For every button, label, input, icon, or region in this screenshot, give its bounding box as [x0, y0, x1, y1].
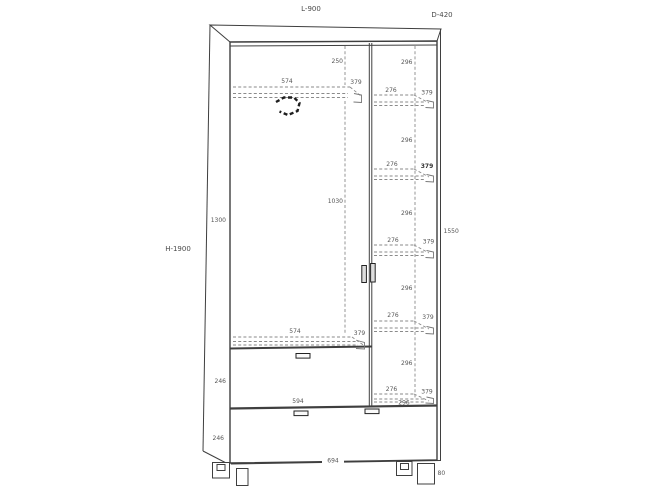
- drawer2-handle-right: [365, 409, 379, 414]
- wardrobe-technical-drawing: L-900 D-420 H-1900 250 296 574 379 276 3…: [0, 0, 648, 486]
- dim-label: 296: [401, 210, 413, 217]
- dim-label: 379: [421, 90, 433, 97]
- drawing-canvas: L-900 D-420 H-1900 250 296 574 379 276 3…: [0, 0, 648, 486]
- overall-depth-label: D-420: [431, 11, 452, 19]
- shelf2-bracket: [426, 175, 434, 183]
- front-right-leg-notch: [401, 464, 409, 470]
- dim-label: 246: [215, 378, 227, 385]
- depth-brackets: [354, 94, 434, 404]
- left-door-handle: [362, 266, 367, 283]
- dim-label: 296: [401, 285, 413, 292]
- dim-label: 1030: [328, 198, 343, 205]
- dim-label: 594: [292, 398, 304, 405]
- top-panel: [210, 25, 441, 42]
- shelf1-bracket: [426, 101, 434, 109]
- dimension-labels: 250 296 574 379 276 379 296 276 379 1030…: [211, 58, 459, 477]
- dim-label: 379: [423, 239, 435, 246]
- overall-width-label: L-900: [301, 5, 321, 13]
- dim-label: 379: [421, 389, 433, 396]
- dim-label: 296: [401, 360, 413, 367]
- dim-label: 296: [401, 137, 413, 144]
- drawer1-handle: [296, 354, 310, 359]
- right-door-handle: [371, 264, 376, 283]
- clothes-hanger-icon: [276, 98, 300, 116]
- front-left-leg-notch: [217, 465, 225, 471]
- back-right-leg: [418, 464, 435, 485]
- dim-label: 296: [398, 400, 410, 407]
- handles: [294, 264, 379, 416]
- dim-label: 246: [213, 435, 225, 442]
- dim-label: 379: [354, 330, 366, 337]
- back-left-leg: [237, 469, 249, 486]
- dim-label: 276: [386, 161, 398, 168]
- left-bottom-bracket: [356, 341, 365, 350]
- dim-label: 574: [289, 328, 301, 335]
- left-side-edge: [203, 25, 210, 451]
- dim-label: 276: [385, 87, 397, 94]
- dim-label: 276: [387, 312, 399, 319]
- dim-label: 1550: [444, 228, 459, 235]
- dim-label: 1300: [211, 217, 226, 224]
- rod-bracket: [354, 94, 362, 103]
- shelf4-bracket: [426, 327, 434, 335]
- dim-label: 276: [386, 386, 398, 393]
- dim-label: 276: [387, 237, 399, 244]
- shelf3-bracket: [426, 251, 434, 259]
- dim-label: 379: [422, 314, 434, 321]
- dim-label: 694: [327, 458, 339, 465]
- dim-label: 296: [401, 59, 413, 66]
- dim-label: 379: [350, 79, 362, 86]
- top-panel-thickness-line: [230, 45, 437, 46]
- dim-label: 379: [421, 163, 434, 170]
- legs: [213, 462, 435, 486]
- overall-height-label: H-1900: [165, 245, 191, 253]
- dim-label: 574: [281, 78, 293, 85]
- shelf5-bracket: [426, 397, 434, 404]
- dim-label: 250: [332, 58, 344, 65]
- drawer1-top-line: [230, 347, 372, 349]
- drawer2-handle-left: [294, 411, 308, 416]
- dim-label: 80: [438, 470, 446, 477]
